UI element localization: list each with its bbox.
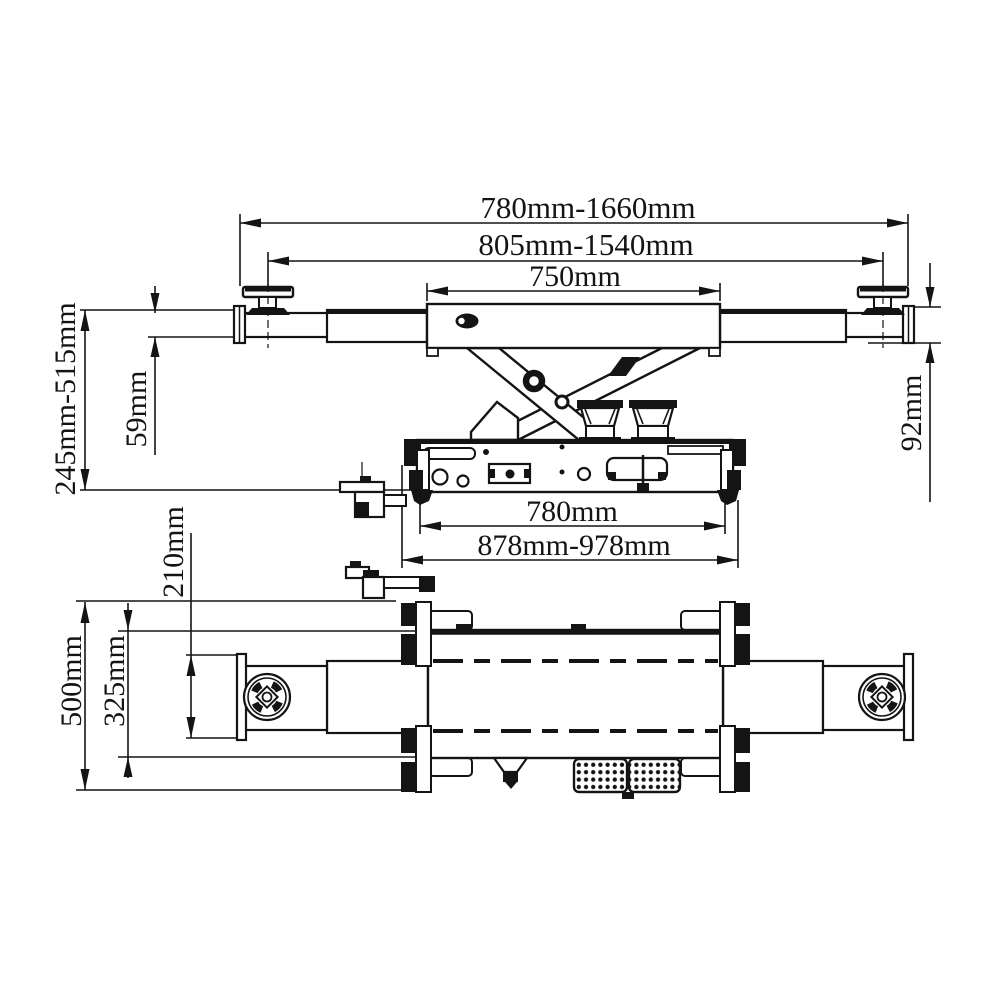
base-frame (417, 440, 733, 493)
dim-arm-end-label: 92mm (895, 375, 928, 452)
jack-technical-drawing: 780mm-1660mm 805mm-1540mm 750mm 245mm-51… (0, 0, 1000, 1000)
dim-span-outer-label: 780mm-1660mm (480, 190, 695, 225)
swivel-pad-left (244, 674, 290, 720)
dim-height-range-label: 245mm-515mm (49, 302, 82, 495)
dim-frame-inner-label: 780mm (526, 495, 618, 528)
plan-view (237, 561, 913, 799)
dim-center-section-label: 750mm (529, 260, 621, 293)
dim-span-pad-centers-label: 805mm-1540mm (478, 227, 693, 262)
lift-beam (234, 304, 914, 356)
dim-arm-profile-label: 59mm (120, 371, 153, 448)
grip-plates (574, 759, 680, 799)
release-pin (637, 483, 649, 493)
swivel-pad-right (859, 674, 905, 720)
tow-handle-plan (346, 561, 435, 598)
front-view (234, 284, 914, 517)
plan-body (428, 611, 724, 776)
dim-frame-overall-label: 878mm-978mm (477, 529, 670, 562)
pivot-pin (526, 373, 542, 389)
dim-body-width-label: 325mm (98, 635, 131, 727)
dim-overall-width-label: 500mm (55, 635, 88, 727)
drawing-page: 780mm-1660mm 805mm-1540mm 750mm 245mm-51… (0, 0, 1000, 1000)
roller-pin (556, 396, 568, 408)
foot-pedal (494, 758, 527, 789)
dim-pad-offset-label: 210mm (157, 506, 190, 598)
